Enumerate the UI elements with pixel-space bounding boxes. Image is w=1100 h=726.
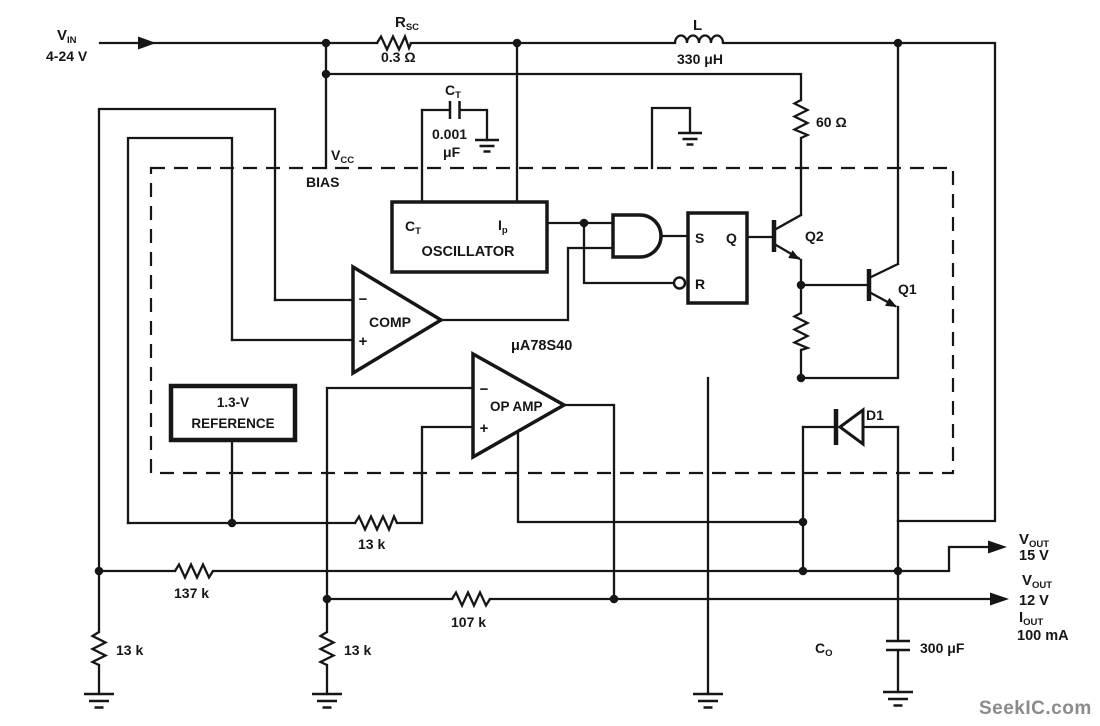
rsc-main: R <box>395 14 406 31</box>
co-sub: O <box>825 648 832 659</box>
rsc-value: 0.3 Ω <box>381 49 416 65</box>
comp-plus-sign: + <box>359 333 368 350</box>
r60-value: 60 Ω <box>816 114 847 130</box>
r13k-ref-label: 13 k <box>358 536 385 552</box>
junction-dot <box>797 374 806 383</box>
junction-dot <box>95 567 104 576</box>
co-main: C <box>815 640 825 656</box>
r13k-mid-label: 13 k <box>344 642 371 658</box>
reference-line2: REFERENCE <box>191 416 274 431</box>
reset-inverter-bubble <box>674 278 685 289</box>
flipflop-r: R <box>695 276 705 292</box>
junction-dot <box>322 39 331 48</box>
opamp-label: OP AMP <box>490 399 543 414</box>
osc-pin-ct-sub: T <box>415 226 421 237</box>
ic-name: μA78S40 <box>511 338 572 354</box>
junction-dot <box>797 281 806 290</box>
junction-dot <box>894 567 903 576</box>
circuit-schematic: VIN 4-24 V RSC 0.3 Ω L 330 μH CT 0.001 μ… <box>0 0 1100 726</box>
iout-value: 100 mA <box>1017 628 1069 644</box>
osc-pin-ip-sub: p <box>502 225 508 236</box>
junction-dot <box>323 595 332 604</box>
q2-label: Q2 <box>805 228 824 244</box>
and-gate <box>613 215 661 257</box>
junction-dot <box>513 39 522 48</box>
junction-dot <box>228 519 237 528</box>
vcc-sub: CC <box>340 155 354 166</box>
d1-label: D1 <box>866 407 884 423</box>
schematic-page: VIN 4-24 V RSC 0.3 Ω L 330 μH CT 0.001 μ… <box>0 0 1100 726</box>
co-value: 300 μF <box>920 640 965 656</box>
iout-sub: OUT <box>1023 617 1043 628</box>
comp-label: COMP <box>369 314 411 330</box>
junction-dot <box>894 39 903 48</box>
junction-dot <box>799 518 808 527</box>
oscillator-block <box>392 202 547 272</box>
r107k-label: 107 k <box>451 614 486 630</box>
junction-dot <box>322 70 331 79</box>
vout12-main: V <box>1022 572 1032 589</box>
q1-label: Q1 <box>898 281 917 297</box>
r13k-left-label: 13 k <box>116 642 143 658</box>
junction-dot <box>610 595 619 604</box>
junction-dot <box>580 219 589 228</box>
vin-main: V <box>57 27 67 44</box>
inductor-value: 330 μH <box>677 51 723 67</box>
ct-cap-value: 0.001 <box>432 126 467 142</box>
osc-pin-ct-main: C <box>405 218 415 234</box>
oscillator-title: OSCILLATOR <box>422 244 515 260</box>
reference-line1: 1.3-V <box>217 395 249 410</box>
r137k-label: 137 k <box>174 585 209 601</box>
ct-cap-main: C <box>445 82 455 98</box>
vin-range: 4-24 V <box>46 48 88 64</box>
vin-sub: IN <box>67 35 77 46</box>
flipflop-q: Q <box>726 230 737 246</box>
opamp-minus-sign: − <box>480 381 489 398</box>
ct-cap-unit: μF <box>443 144 461 160</box>
bias-label: BIAS <box>306 174 339 190</box>
rsc-sub: SC <box>406 22 419 33</box>
junction-dot <box>799 567 808 576</box>
flipflop-s: S <box>695 230 704 246</box>
vout12-sub: OUT <box>1032 580 1052 591</box>
comp-minus-sign: − <box>359 291 368 308</box>
opamp-plus-sign: + <box>480 420 489 437</box>
ct-cap-sub: T <box>455 90 461 101</box>
vout15-main: V <box>1019 531 1029 548</box>
vout15-value: 15 V <box>1019 548 1049 564</box>
watermark-text: SeekIC.com <box>979 698 1092 719</box>
vout12-value: 12 V <box>1019 593 1049 609</box>
inductor-label: L <box>693 17 702 34</box>
